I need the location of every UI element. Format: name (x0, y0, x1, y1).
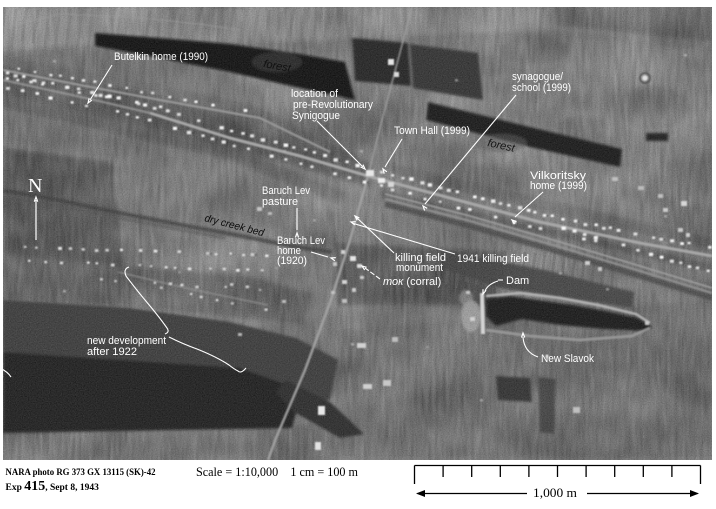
svg-text:ток (corral): ток (corral) (383, 276, 441, 288)
svg-text:N: N (28, 175, 42, 197)
svg-text:New Slavok: New Slavok (541, 353, 594, 365)
svg-text:Butelkin home (1990): Butelkin home (1990) (114, 51, 208, 63)
svg-text:(1920): (1920) (277, 255, 307, 267)
svg-text:home (1999): home (1999) (530, 180, 587, 192)
svg-text:school (1999): school (1999) (512, 82, 571, 94)
svg-text:Synigogue: Synigogue (292, 110, 340, 122)
svg-text:after 1922: after 1922 (87, 346, 137, 358)
svg-text:pasture: pasture (262, 196, 298, 208)
svg-text:Scale = 1:10,000 1 cm = 100: Scale = 1:10,000 1 cm = 100 m (196, 465, 358, 479)
svg-text:Town Hall (1999): Town Hall (1999) (394, 125, 470, 137)
svg-text:Dam: Dam (506, 275, 529, 287)
svg-text:NARA photo RG 373 GX 13115 (SK: NARA photo RG 373 GX 13115 (SK)-42 (6, 467, 156, 478)
svg-text:monument: monument (396, 262, 443, 274)
svg-text:1941 killing field: 1941 killing field (457, 253, 529, 265)
svg-text:1,000 m: 1,000 m (533, 486, 577, 500)
